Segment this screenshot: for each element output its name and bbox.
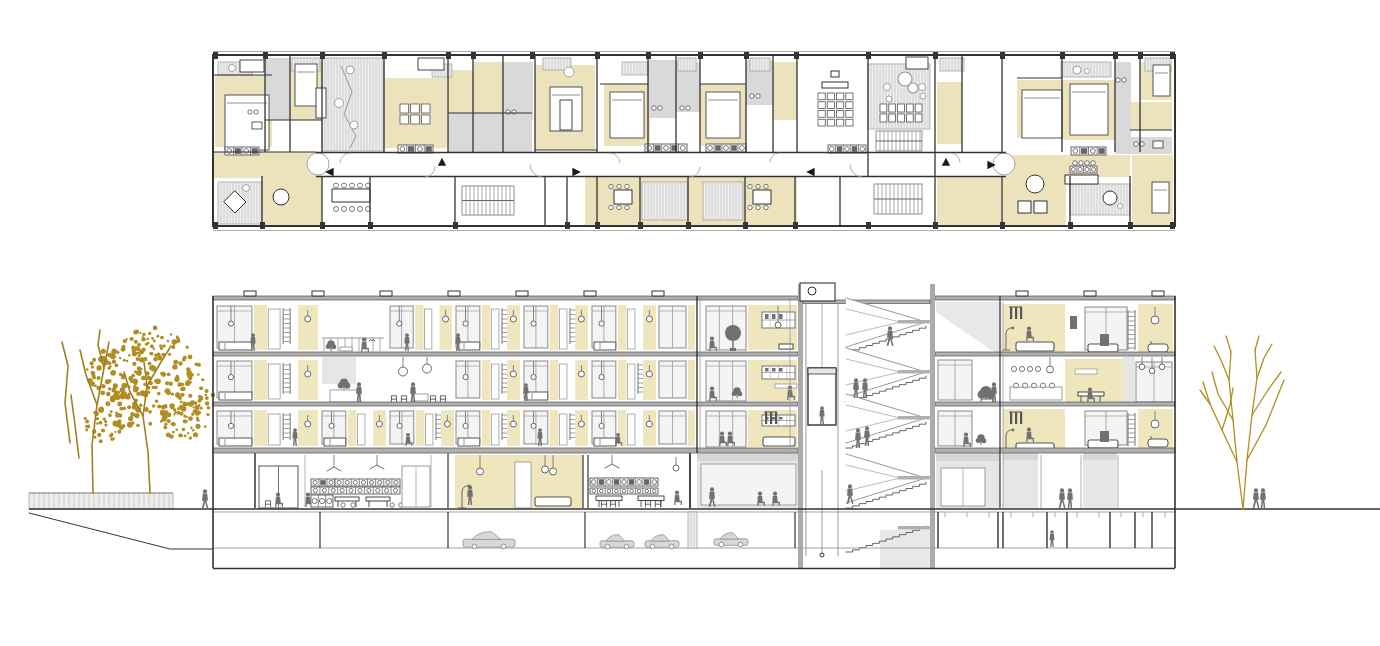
tree-foliage xyxy=(155,399,158,402)
tree-foliage xyxy=(137,343,141,347)
area xyxy=(418,58,444,70)
tree-foliage xyxy=(139,403,142,406)
tree-branches xyxy=(1257,344,1272,378)
tree-foliage xyxy=(157,404,161,408)
area xyxy=(866,52,871,59)
person-body xyxy=(361,342,369,352)
tree-foliage xyxy=(130,337,134,341)
table-grid xyxy=(880,104,887,112)
tree-foliage xyxy=(170,333,172,335)
tree-foliage xyxy=(188,355,193,360)
tree-foliage xyxy=(105,379,110,384)
kitchen-counter xyxy=(311,495,333,507)
chair xyxy=(655,501,660,507)
person-head xyxy=(362,338,366,342)
kitchen-counter xyxy=(852,146,857,152)
room-module xyxy=(482,305,491,350)
circle-row xyxy=(350,183,355,188)
person-body xyxy=(674,495,682,505)
person-head xyxy=(1027,327,1031,331)
tree-foliage xyxy=(97,433,101,437)
tree-foliage xyxy=(193,432,198,437)
shelf-unit xyxy=(772,368,776,372)
area xyxy=(1100,431,1109,442)
tree-foliage xyxy=(84,417,87,420)
wardrobe-items xyxy=(1020,412,1022,424)
area xyxy=(320,52,325,59)
room-module xyxy=(458,438,480,446)
tree-foliage xyxy=(149,352,152,355)
area xyxy=(1070,316,1077,329)
area xyxy=(937,82,962,144)
table-grid xyxy=(915,114,922,122)
circle-row xyxy=(680,106,684,110)
tree-foliage xyxy=(157,392,161,396)
circle-row xyxy=(1014,383,1019,388)
person-head xyxy=(538,428,542,432)
area xyxy=(1100,334,1109,346)
room-module xyxy=(415,305,423,350)
tree-branches xyxy=(1226,336,1231,352)
table-grid xyxy=(411,104,420,113)
tree-foliage xyxy=(138,354,141,357)
tree-foliage xyxy=(140,391,143,394)
area xyxy=(1115,62,1131,154)
circle-detail xyxy=(243,185,250,192)
room-module xyxy=(219,392,252,400)
pendant-lamp xyxy=(463,375,468,380)
tree-branches xyxy=(1229,352,1243,509)
area xyxy=(1075,369,1097,374)
hatched-area xyxy=(943,58,961,71)
tree-foliage xyxy=(143,357,147,361)
tree-foliage xyxy=(193,406,195,408)
car xyxy=(463,539,515,547)
person-body xyxy=(292,432,297,446)
circle-row xyxy=(609,184,613,188)
bed xyxy=(295,64,317,106)
area xyxy=(448,70,500,113)
person-head xyxy=(411,382,415,386)
area xyxy=(935,352,1175,356)
tree-foliage xyxy=(149,366,154,371)
tree-foliage xyxy=(194,401,198,405)
tree-foliage xyxy=(117,430,121,434)
circle-row xyxy=(1085,161,1090,166)
tree-foliage xyxy=(108,361,112,365)
tree-foliage xyxy=(137,366,142,371)
tree-foliage xyxy=(188,380,192,384)
table-grid xyxy=(827,111,834,118)
room-module xyxy=(254,410,267,446)
stair-flight xyxy=(898,476,934,480)
person-figure xyxy=(1067,488,1073,508)
pendant-lamp xyxy=(376,421,382,427)
circle-row xyxy=(341,503,345,507)
circle-row xyxy=(1116,78,1120,82)
person-head xyxy=(992,382,996,386)
tree-foliage xyxy=(101,384,105,388)
circle-row xyxy=(358,183,363,188)
circle-row xyxy=(1050,383,1055,388)
kitchen-counter xyxy=(706,144,746,152)
circle-row xyxy=(686,106,690,110)
tree-foliage xyxy=(153,357,157,361)
wardrobe-items xyxy=(765,412,767,424)
tree-foliage xyxy=(185,420,187,422)
room-module xyxy=(627,364,635,399)
tree-foliage xyxy=(94,385,97,388)
tree-foliage xyxy=(207,406,211,410)
shelf-unit xyxy=(765,314,769,319)
tree-foliage xyxy=(191,373,194,376)
area xyxy=(530,52,535,59)
car xyxy=(472,532,500,540)
area xyxy=(933,52,938,59)
person-figure xyxy=(202,489,209,509)
pendant-lamp xyxy=(542,466,549,473)
tree-foliage xyxy=(122,406,126,410)
kitchen-counter xyxy=(731,145,737,151)
room-module xyxy=(268,364,280,399)
tree-foliage xyxy=(180,401,183,404)
pendant-lamp xyxy=(510,421,516,427)
circle-row xyxy=(342,183,347,188)
bird-icon xyxy=(369,340,375,341)
area xyxy=(213,448,798,453)
tree-foliage xyxy=(141,376,146,381)
tree-foliage xyxy=(175,428,178,431)
tree-foliage xyxy=(147,342,150,345)
pendant-lamp xyxy=(1151,316,1159,324)
circle-row xyxy=(1073,161,1078,166)
plant xyxy=(326,344,331,349)
area xyxy=(753,190,771,204)
tree-foliage xyxy=(115,415,118,418)
table-grid xyxy=(837,93,844,100)
tree-foliage xyxy=(195,406,199,410)
tree-foliage xyxy=(134,340,138,344)
circle-detail xyxy=(350,121,358,129)
tree-foliage xyxy=(91,365,94,368)
area xyxy=(798,284,803,568)
area xyxy=(448,291,460,296)
tree-foliage xyxy=(105,401,110,406)
tree-foliage xyxy=(166,419,170,423)
tree-foliage xyxy=(134,346,139,351)
tree-foliage xyxy=(169,434,174,439)
tree-foliage xyxy=(94,436,97,439)
area xyxy=(808,368,836,374)
person-body xyxy=(1050,534,1055,547)
kitchen-counter xyxy=(629,479,634,485)
pendant-lamp xyxy=(327,467,341,471)
tree-foliage xyxy=(192,429,194,431)
tree-foliage xyxy=(111,350,116,355)
tree-foliage xyxy=(204,389,208,393)
area xyxy=(515,462,531,508)
area xyxy=(775,384,797,388)
area xyxy=(701,464,796,505)
area xyxy=(340,347,352,351)
tree-foliage xyxy=(127,405,131,409)
area xyxy=(1000,52,1005,59)
person-head xyxy=(863,378,867,382)
tree-foliage xyxy=(146,338,149,341)
pendant-lamp xyxy=(305,421,311,427)
pendant-lamp xyxy=(531,321,536,326)
area xyxy=(1016,291,1028,296)
room-module xyxy=(219,438,252,446)
car xyxy=(738,542,743,547)
room-module xyxy=(688,360,695,400)
area xyxy=(779,344,793,349)
tree-foliage xyxy=(128,416,133,421)
pendant-lamp xyxy=(1151,420,1159,428)
tree-foliage xyxy=(92,376,96,380)
tree-foliage xyxy=(153,326,158,331)
tree-foliage xyxy=(134,370,137,373)
person-head xyxy=(675,491,679,495)
circle-row xyxy=(334,207,339,212)
bed xyxy=(1022,90,1062,138)
area xyxy=(748,305,760,350)
pendant-lamp xyxy=(444,421,450,427)
tree-foliage xyxy=(180,388,183,391)
tree-foliage xyxy=(200,407,203,410)
stair-flight xyxy=(898,416,934,420)
tree-foliage xyxy=(85,428,88,431)
area xyxy=(1130,102,1172,130)
tree-foliage xyxy=(197,373,200,376)
tree-foliage xyxy=(173,414,175,416)
tree-foliage xyxy=(175,375,179,379)
circle-detail xyxy=(229,65,236,72)
pendant-lamp xyxy=(1149,368,1155,374)
bed xyxy=(1152,182,1169,213)
bed xyxy=(535,497,571,506)
tree-foliage xyxy=(136,357,140,361)
tree-foliage xyxy=(104,423,107,426)
person-head xyxy=(710,387,714,391)
area xyxy=(933,222,938,229)
tree-foliage xyxy=(177,407,180,410)
tree-foliage xyxy=(196,417,199,420)
tree-foliage xyxy=(122,383,128,389)
area xyxy=(898,526,932,530)
hatched-area xyxy=(622,62,648,75)
circle-row xyxy=(764,184,768,188)
tree-foliage xyxy=(206,413,209,416)
plant xyxy=(725,325,741,341)
pendant-lamp xyxy=(463,321,468,326)
tree-foliage xyxy=(117,401,122,406)
circle-detail xyxy=(1103,191,1117,205)
area xyxy=(1083,453,1117,460)
table-grid xyxy=(906,104,913,112)
room-module xyxy=(618,305,627,350)
table-grid xyxy=(898,114,905,122)
area xyxy=(936,453,1000,461)
room-module xyxy=(559,309,567,349)
area xyxy=(906,57,928,69)
plant xyxy=(976,438,981,443)
tree-foliage xyxy=(143,383,146,386)
wardrobe-items xyxy=(1010,307,1012,319)
circle-row xyxy=(658,106,662,110)
drawing-canvas xyxy=(0,0,1380,646)
room-module xyxy=(688,305,695,350)
tree-foliage xyxy=(92,358,96,362)
tree-foliage xyxy=(86,425,90,429)
pendant-lamp xyxy=(599,321,604,326)
kitchen-counter xyxy=(1081,148,1087,154)
tree-foliage xyxy=(100,390,105,395)
table-grid xyxy=(880,114,887,122)
room-module xyxy=(425,309,432,349)
table-grid xyxy=(906,114,913,122)
tree-foliage xyxy=(150,344,154,348)
circle-row xyxy=(748,205,752,209)
pendant-lamp xyxy=(775,322,781,328)
area xyxy=(335,497,359,501)
pendant-lamp xyxy=(550,468,557,475)
person-body xyxy=(202,493,209,509)
plant xyxy=(737,391,742,396)
area xyxy=(1152,291,1164,296)
circle-detail xyxy=(335,99,344,108)
pendant-lamp xyxy=(1139,364,1145,370)
tree-foliage xyxy=(106,392,111,397)
circle-row xyxy=(652,106,656,110)
room-module xyxy=(416,410,425,446)
kitchen-counter xyxy=(252,148,258,154)
area xyxy=(697,453,798,461)
tree-foliage xyxy=(109,434,113,438)
tree-foliage xyxy=(199,386,203,390)
chair xyxy=(430,396,435,402)
area xyxy=(793,222,798,229)
circle-row xyxy=(609,205,613,209)
tree-foliage xyxy=(112,394,118,400)
pendant-lamp xyxy=(510,371,516,377)
pendant-lamp xyxy=(305,371,311,377)
area xyxy=(638,222,643,229)
tree-foliage xyxy=(164,389,168,393)
bathtub xyxy=(1148,344,1168,352)
pendant-lamp xyxy=(578,316,584,322)
floor-plan xyxy=(213,52,1175,231)
person-body xyxy=(1059,492,1066,508)
tree-foliage xyxy=(161,405,166,410)
pendant-lamp xyxy=(599,423,604,428)
table-grid xyxy=(818,111,825,118)
chair xyxy=(601,501,606,507)
tree-foliage xyxy=(165,381,169,385)
area xyxy=(1113,52,1118,59)
kitchen-counter xyxy=(235,148,241,154)
kitchen-counter xyxy=(655,145,661,151)
kitchen-counter xyxy=(837,146,842,152)
car xyxy=(624,544,629,549)
circle-detail xyxy=(273,189,289,205)
area xyxy=(263,52,268,59)
circle-row xyxy=(390,503,394,507)
tree-foliage xyxy=(119,357,122,360)
chair xyxy=(440,396,445,402)
tree-branches xyxy=(1212,372,1233,420)
tree-foliage xyxy=(134,330,139,335)
shelf-unit xyxy=(779,314,783,319)
table-grid xyxy=(421,115,430,124)
area xyxy=(935,402,1175,406)
area xyxy=(453,222,458,229)
tree-foliage xyxy=(162,344,166,348)
tree-foliage xyxy=(135,388,138,391)
tree-foliage xyxy=(148,410,152,414)
tree-foliage xyxy=(167,340,170,343)
table-grid xyxy=(898,104,905,112)
circle-detail xyxy=(884,84,891,91)
person-head xyxy=(251,333,255,337)
circle-row xyxy=(1011,366,1016,371)
shelf-unit xyxy=(772,417,776,420)
area xyxy=(565,222,570,229)
area xyxy=(652,291,664,296)
tree-branches xyxy=(1247,380,1284,460)
area xyxy=(260,222,265,229)
area xyxy=(935,296,1175,300)
area xyxy=(1034,201,1047,213)
pendant-lamp xyxy=(531,423,536,428)
tree-foliage xyxy=(160,336,164,340)
circle-row xyxy=(1027,366,1032,371)
room-module xyxy=(491,414,499,445)
tree-foliage xyxy=(115,411,118,414)
person-head xyxy=(773,492,777,496)
table-grid xyxy=(421,104,430,113)
tree-foliage xyxy=(119,425,124,430)
person-head xyxy=(1088,388,1092,392)
area xyxy=(1010,387,1062,400)
tree-foliage xyxy=(189,403,193,407)
tree-foliage xyxy=(148,362,152,366)
area xyxy=(1000,222,1005,229)
table-grid xyxy=(827,119,834,126)
person-figure xyxy=(1059,488,1066,508)
circle-row xyxy=(625,205,629,209)
area xyxy=(698,52,703,59)
person-head xyxy=(964,433,968,437)
tree-foliage xyxy=(114,363,118,367)
area xyxy=(743,222,748,229)
room-module xyxy=(559,414,567,445)
circle-detail xyxy=(808,287,816,295)
room-module xyxy=(550,305,559,350)
table-grid xyxy=(400,104,409,113)
tree-foliage xyxy=(112,359,116,363)
room-module xyxy=(268,414,280,445)
tree-foliage xyxy=(201,379,203,381)
tree-foliage xyxy=(134,413,139,418)
tree-foliage xyxy=(182,401,187,406)
pendant-lamp xyxy=(1159,364,1165,370)
area xyxy=(646,52,651,59)
circle-row xyxy=(1041,383,1046,388)
room-module xyxy=(491,364,499,399)
pendant-lamp xyxy=(510,316,516,322)
area xyxy=(1128,222,1133,229)
